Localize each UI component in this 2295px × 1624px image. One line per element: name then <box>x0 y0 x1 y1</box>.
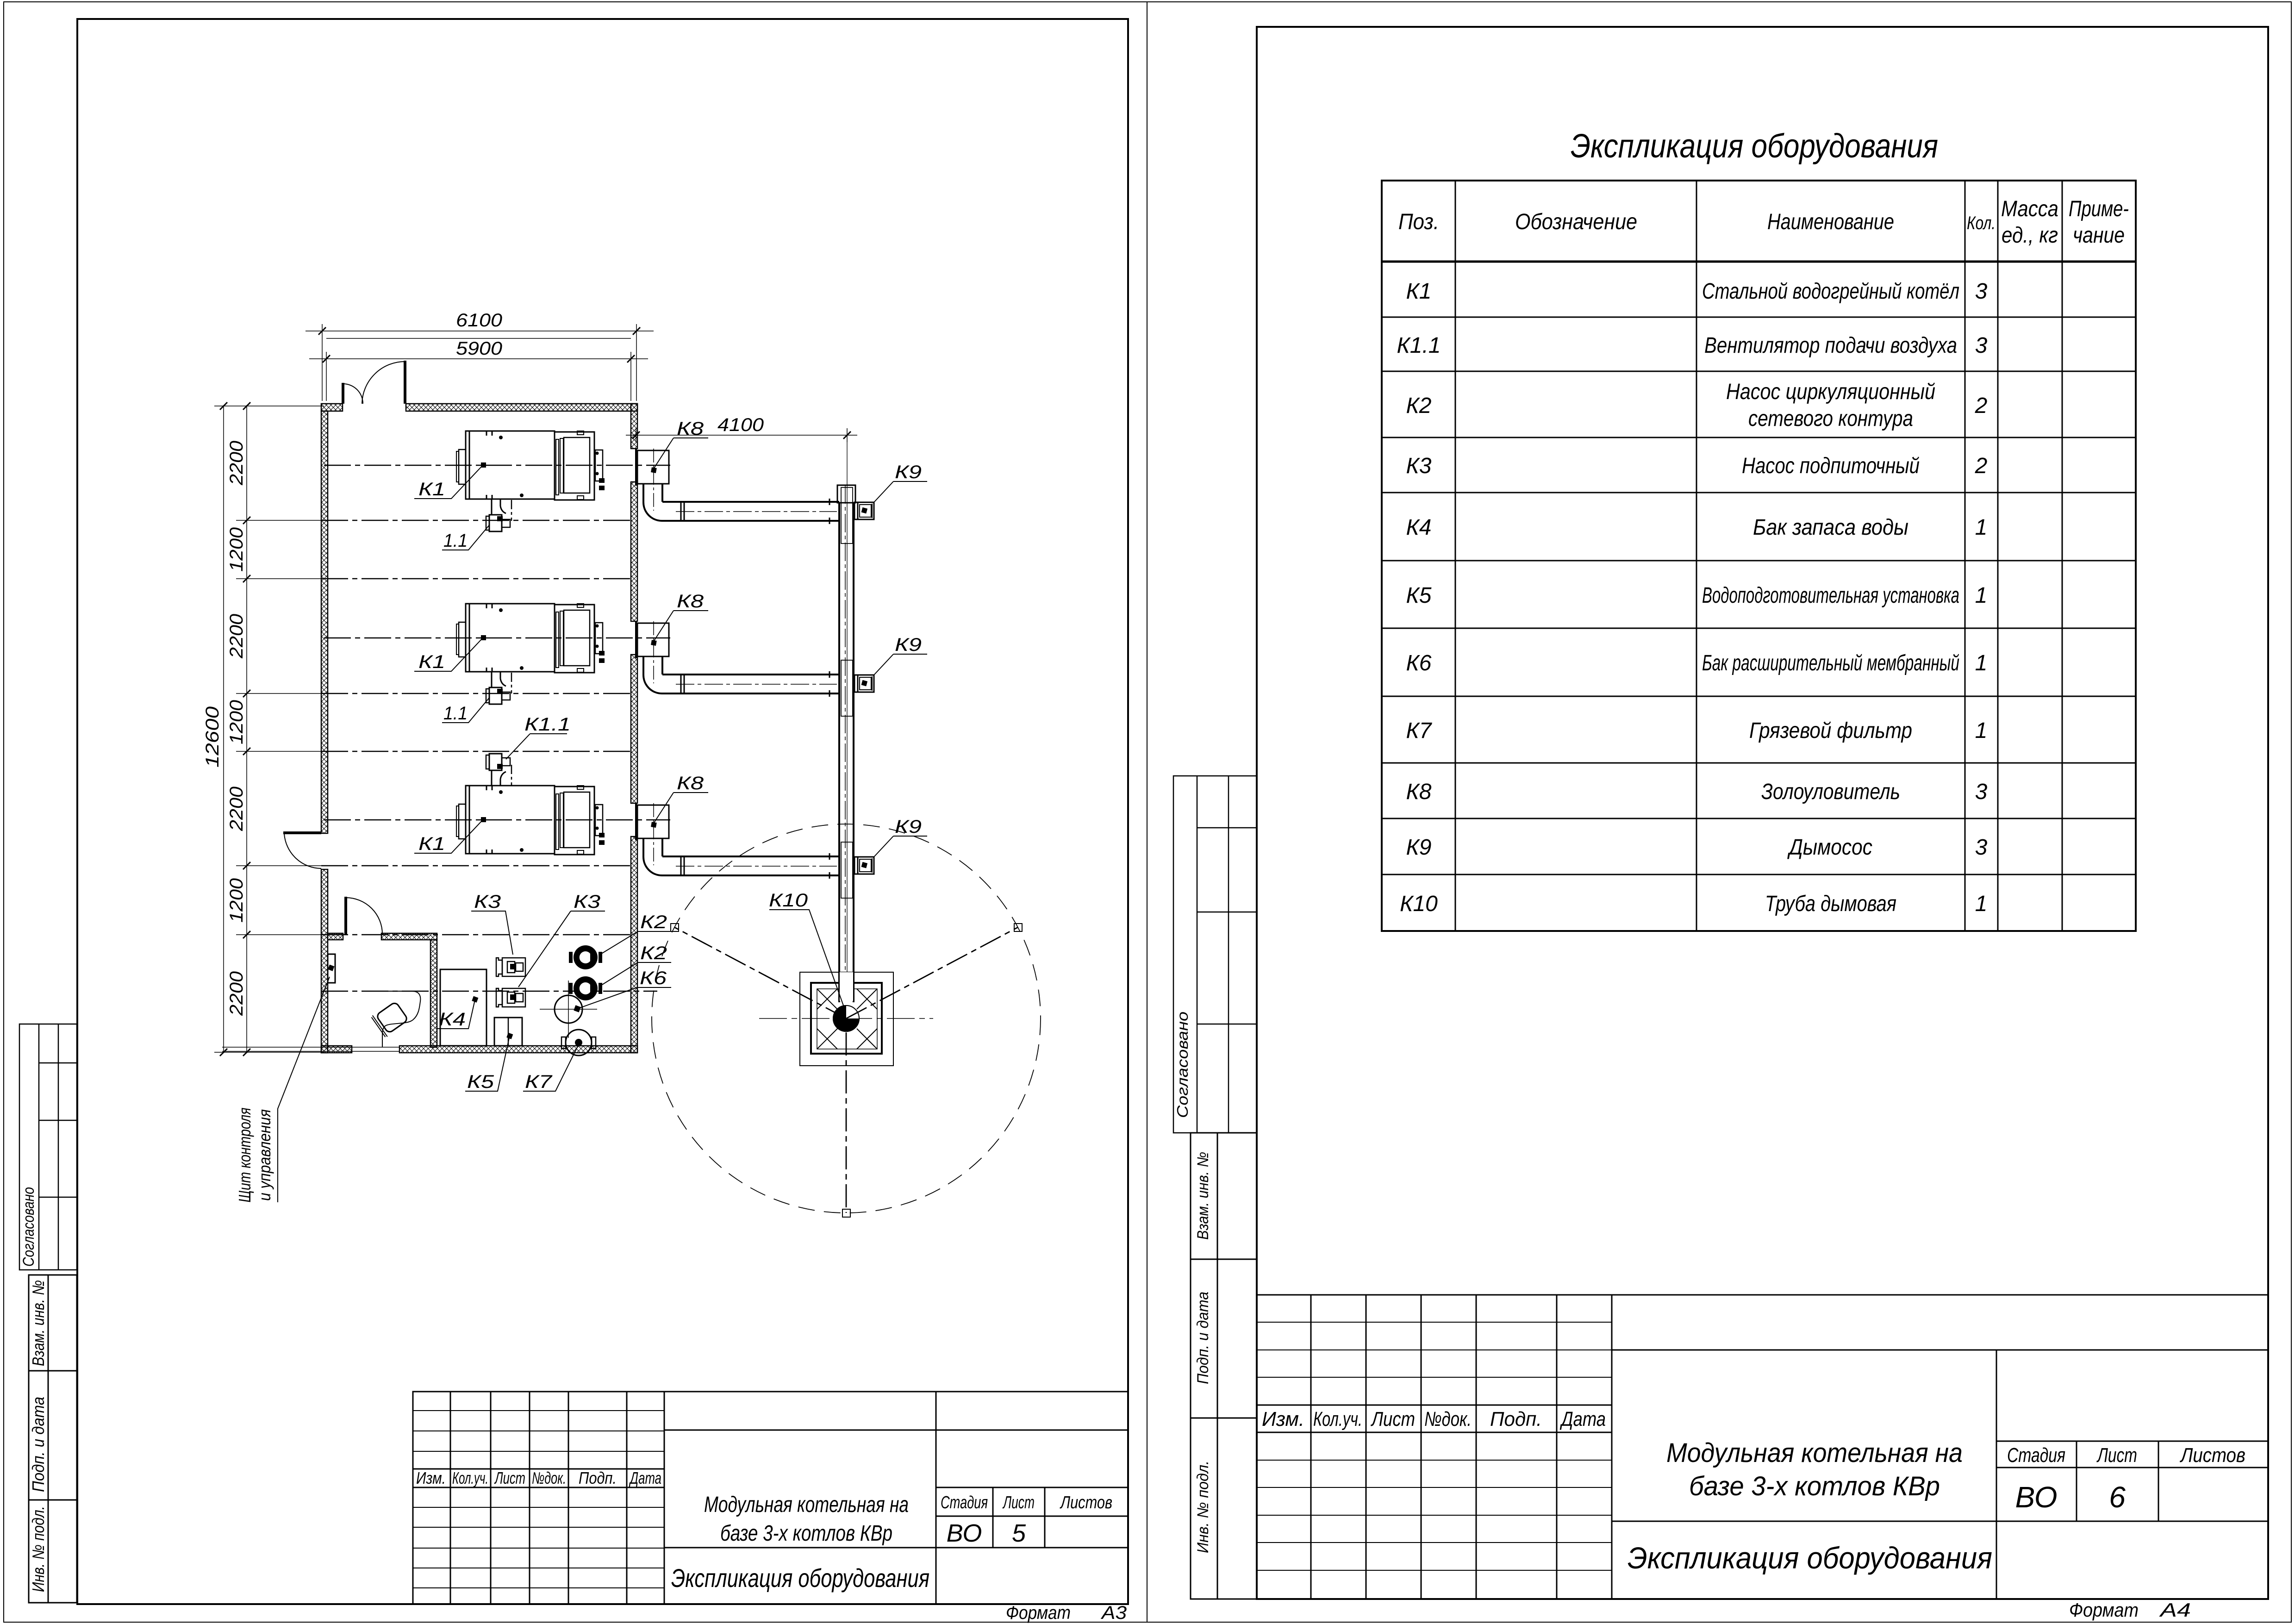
svg-text:2: 2 <box>1975 394 1988 418</box>
svg-text:сетевого контура: сетевого контура <box>1748 406 1913 431</box>
svg-text:1200: 1200 <box>226 878 247 923</box>
svg-text:К3: К3 <box>1406 454 1432 478</box>
svg-text:№док.: №док. <box>532 1468 566 1487</box>
svg-text:К1: К1 <box>1406 279 1432 304</box>
svg-text:Кол.уч.: Кол.уч. <box>452 1468 488 1487</box>
svg-text:К7: К7 <box>1406 718 1433 743</box>
svg-text:3: 3 <box>1975 279 1988 304</box>
svg-text:Формат: Формат <box>1006 1603 1071 1623</box>
svg-text:чание: чание <box>2073 223 2125 248</box>
svg-text:Масса: Масса <box>2001 197 2058 221</box>
svg-text:6: 6 <box>2109 1480 2126 1514</box>
svg-text:Стальной водогрейный котёл: Стальной водогрейный котёл <box>1702 279 1959 304</box>
svg-text:Подп.: Подп. <box>1490 1408 1542 1430</box>
svg-text:К10: К10 <box>1400 892 1438 916</box>
svg-text:Лист: Лист <box>2096 1444 2137 1467</box>
svg-text:К2: К2 <box>1406 394 1432 418</box>
svg-text:5900: 5900 <box>456 338 502 359</box>
svg-text:К9: К9 <box>895 817 922 837</box>
svg-text:Грязевой фильтр: Грязевой фильтр <box>1749 718 1912 743</box>
svg-text:Дымосос: Дымосос <box>1787 835 1872 860</box>
svg-text:1.1: 1.1 <box>443 703 468 724</box>
svg-text:2200: 2200 <box>226 614 247 659</box>
svg-text:Золоуловитель: Золоуловитель <box>1761 780 1900 804</box>
svg-text:12600: 12600 <box>202 706 223 768</box>
svg-text:К4: К4 <box>1406 515 1432 540</box>
svg-text:ед., кг: ед., кг <box>2002 223 2058 248</box>
svg-text:Листов: Листов <box>2179 1444 2245 1467</box>
svg-text:Лист: Лист <box>1002 1493 1035 1512</box>
svg-text:6100: 6100 <box>456 310 502 331</box>
svg-text:базе 3-х котлов КВр: базе 3-х котлов КВр <box>720 1521 892 1546</box>
svg-text:К6: К6 <box>1406 651 1432 675</box>
svg-text:Стадия: Стадия <box>2007 1444 2065 1467</box>
svg-text:Подп.: Подп. <box>579 1468 617 1487</box>
svg-text:К3: К3 <box>474 892 501 912</box>
svg-text:Обозначение: Обозначение <box>1515 210 1637 234</box>
svg-text:К6: К6 <box>640 968 667 988</box>
svg-text:К8: К8 <box>677 591 704 612</box>
svg-text:2200: 2200 <box>226 441 247 486</box>
svg-text:Согласовано: Согласовано <box>20 1187 37 1267</box>
svg-text:1200: 1200 <box>226 527 247 572</box>
svg-text:2: 2 <box>1975 454 1988 478</box>
svg-text:2200: 2200 <box>226 971 247 1016</box>
svg-text:Инв. № подл.: Инв. № подл. <box>1194 1461 1212 1553</box>
svg-text:Модульная котельная на: Модульная котельная на <box>704 1493 909 1517</box>
svg-text:1.1: 1.1 <box>443 531 468 551</box>
svg-text:Взам. инв. №: Взам. инв. № <box>29 1280 48 1366</box>
svg-text:Экспликация оборудования: Экспликация оборудования <box>1571 128 1938 165</box>
svg-text:К2: К2 <box>640 943 667 963</box>
svg-text:Дата: Дата <box>629 1468 661 1487</box>
svg-text:К8: К8 <box>677 418 704 439</box>
svg-text:К4: К4 <box>439 1009 466 1030</box>
svg-text:А3: А3 <box>1101 1603 1127 1623</box>
svg-text:Бак запаса воды: Бак запаса воды <box>1753 515 1908 540</box>
svg-text:Лист: Лист <box>494 1468 525 1487</box>
svg-text:Насос циркуляционный: Насос циркуляционный <box>1726 380 1935 404</box>
svg-text:3: 3 <box>1975 835 1988 860</box>
svg-text:1: 1 <box>1975 515 1988 540</box>
svg-text:Вентилятор подачи воздуха: Вентилятор подачи воздуха <box>1704 333 1957 358</box>
svg-text:1200: 1200 <box>226 700 247 744</box>
svg-text:Взам. инв. №: Взам. инв. № <box>1194 1152 1212 1240</box>
svg-text:К8: К8 <box>1406 780 1432 804</box>
svg-text:Насос подпиточный: Насос подпиточный <box>1742 454 1920 478</box>
svg-text:К9: К9 <box>895 462 922 482</box>
svg-text:Лист: Лист <box>1371 1408 1415 1430</box>
svg-text:1: 1 <box>1975 892 1988 916</box>
svg-text:Модульная котельная на: Модульная котельная на <box>1666 1438 1963 1468</box>
svg-text:Кол.уч.: Кол.уч. <box>1313 1408 1362 1430</box>
svg-text:Подп. и дата: Подп. и дата <box>1194 1292 1212 1384</box>
svg-text:Приме-: Приме- <box>2069 197 2129 221</box>
svg-text:№док.: №док. <box>1424 1408 1472 1430</box>
svg-text:К5: К5 <box>467 1072 494 1092</box>
svg-text:К1: К1 <box>418 834 445 854</box>
svg-text:Экспликация оборудования: Экспликация оборудования <box>1628 1541 1992 1575</box>
svg-text:Экспликация оборудования: Экспликация оборудования <box>671 1563 929 1593</box>
svg-text:4100: 4100 <box>717 415 764 435</box>
svg-text:Кол.: Кол. <box>1967 213 1996 233</box>
svg-text:К5: К5 <box>1406 583 1432 608</box>
svg-text:Листов: Листов <box>1060 1493 1112 1512</box>
svg-text:Водоподготовительная установка: Водоподготовительная установка <box>1702 583 1959 608</box>
svg-text:К8: К8 <box>677 773 704 793</box>
svg-text:Инв. № подл.: Инв. № подл. <box>29 1506 48 1592</box>
svg-text:Труба дымовая: Труба дымовая <box>1765 892 1896 916</box>
svg-text:Стадия: Стадия <box>941 1493 988 1512</box>
svg-text:К1: К1 <box>418 652 445 672</box>
svg-text:Дата: Дата <box>1559 1408 1606 1430</box>
svg-text:К9: К9 <box>895 635 922 655</box>
svg-text:К7: К7 <box>525 1072 553 1092</box>
svg-text:2200: 2200 <box>226 787 247 831</box>
svg-text:К3: К3 <box>574 892 600 912</box>
svg-text:1: 1 <box>1975 718 1988 743</box>
svg-text:К10: К10 <box>769 890 808 911</box>
svg-text:Бак расширительный мембранный: Бак расширительный мембранный <box>1702 651 1959 675</box>
svg-text:А4: А4 <box>2158 1599 2191 1621</box>
svg-text:и управления: и управления <box>255 1109 274 1201</box>
svg-text:Подп. и дата: Подп. и дата <box>29 1397 48 1492</box>
svg-text:К1.1: К1.1 <box>524 714 571 735</box>
svg-text:3: 3 <box>1975 333 1988 358</box>
svg-text:К9: К9 <box>1406 835 1432 860</box>
svg-text:Наименование: Наименование <box>1767 210 1894 234</box>
svg-text:К1: К1 <box>418 479 445 500</box>
svg-text:Согласовано: Согласовано <box>1174 1012 1191 1118</box>
svg-text:1: 1 <box>1975 583 1988 608</box>
svg-text:Изм.: Изм. <box>416 1468 446 1487</box>
svg-text:ВО: ВО <box>947 1519 982 1547</box>
svg-text:К1.1: К1.1 <box>1397 333 1441 358</box>
svg-text:5: 5 <box>1012 1519 1026 1547</box>
svg-text:Формат: Формат <box>2069 1599 2139 1621</box>
svg-text:Щит контроля: Щит контроля <box>235 1108 254 1203</box>
svg-text:Поз.: Поз. <box>1398 210 1439 234</box>
svg-text:ВО: ВО <box>2015 1480 2057 1514</box>
svg-text:3: 3 <box>1975 780 1988 804</box>
svg-text:1: 1 <box>1975 651 1988 675</box>
svg-text:К2: К2 <box>640 912 667 932</box>
svg-text:Изм.: Изм. <box>1262 1408 1304 1430</box>
svg-text:базе 3-х котлов КВр: базе 3-х котлов КВр <box>1689 1471 1940 1501</box>
